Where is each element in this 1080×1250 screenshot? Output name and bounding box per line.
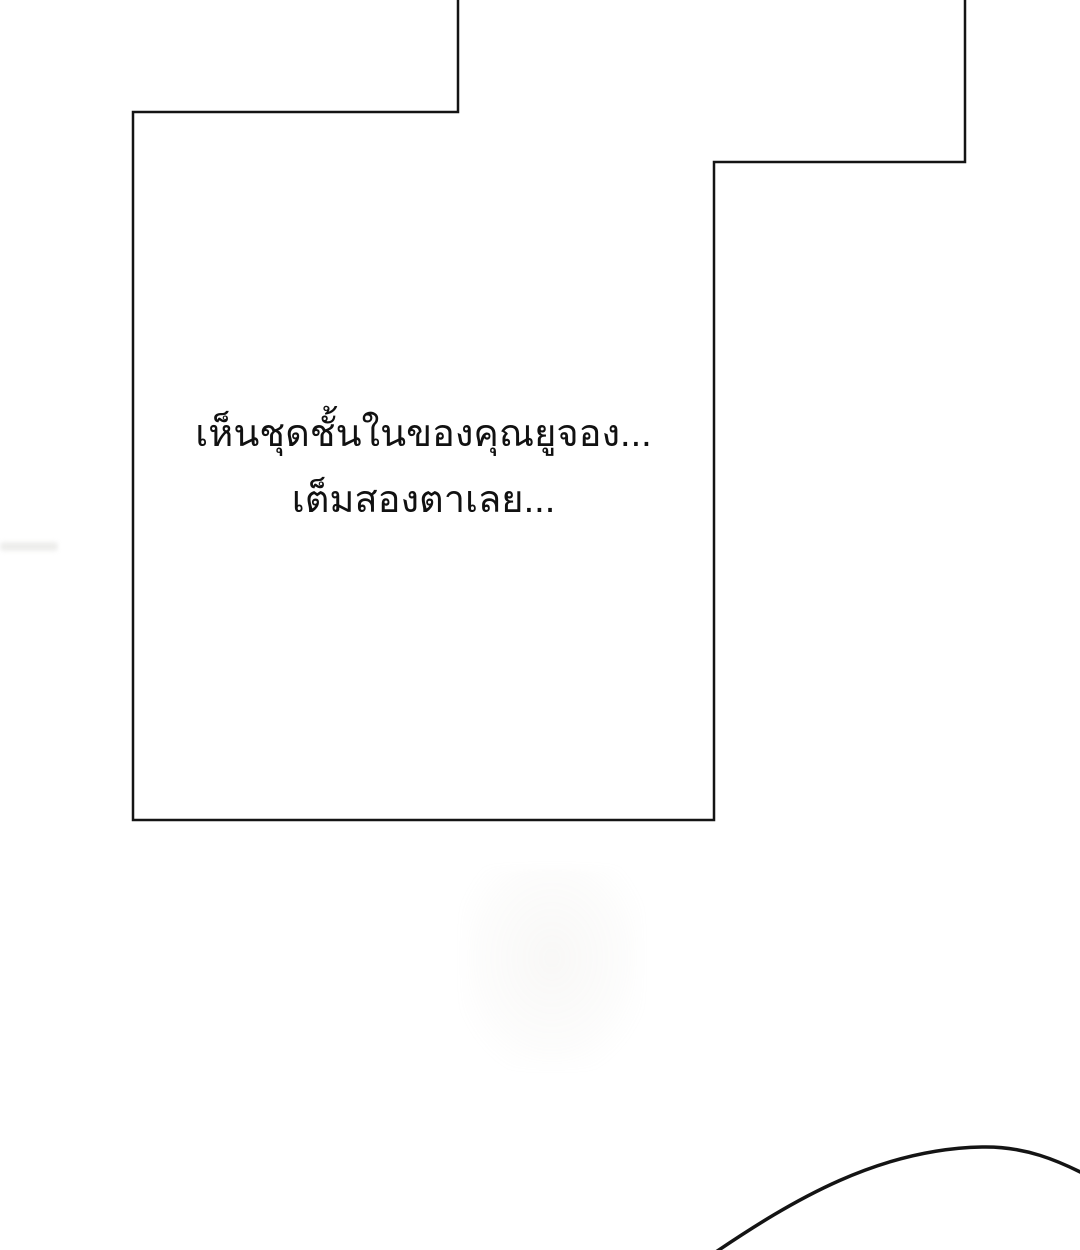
comic-page: เห็นชุดชั้นในของคุณยูจอง... เต็มสองตาเลย… — [0, 0, 1080, 1250]
narration-line-1: เห็นชุดชั้นในของคุณยูจอง... — [133, 401, 714, 467]
faint-smudge — [0, 542, 58, 551]
narration-text: เห็นชุดชั้นในของคุณยูจอง... เต็มสองตาเลย… — [133, 401, 714, 533]
faint-watermark-blob — [462, 868, 642, 1068]
narration-line-2: เต็มสองตาเลย... — [133, 467, 714, 533]
character-head-curve — [710, 1147, 1080, 1250]
